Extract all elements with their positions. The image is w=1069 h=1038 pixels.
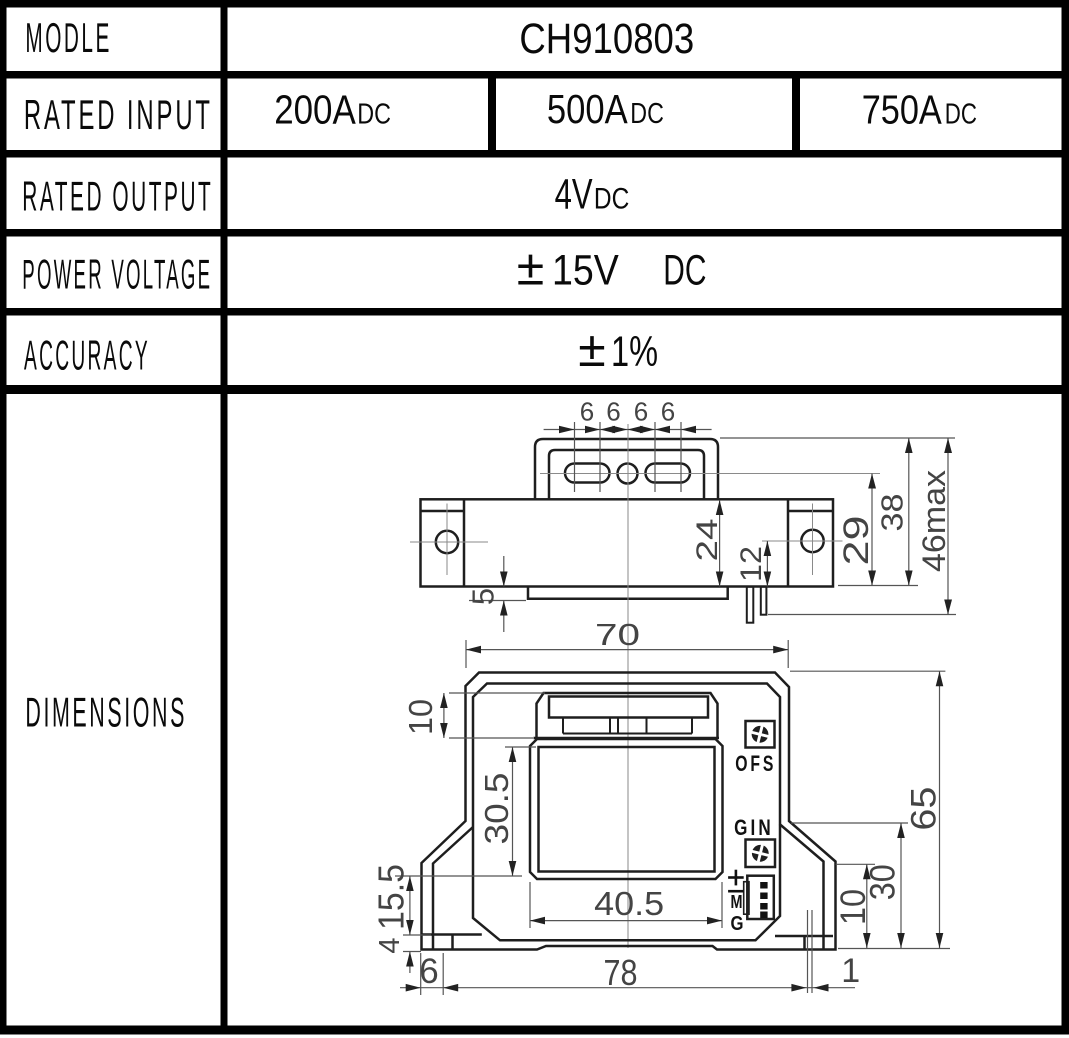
svg-text:12: 12 xyxy=(735,546,768,582)
svg-text:4: 4 xyxy=(374,937,406,953)
svg-text:750A: 750A xyxy=(862,86,943,132)
svg-text:30.5: 30.5 xyxy=(478,773,515,845)
svg-text:40.5: 40.5 xyxy=(594,885,664,922)
svg-text:4V: 4V xyxy=(555,170,593,218)
svg-text:1%: 1% xyxy=(611,328,658,376)
svg-text:500A: 500A xyxy=(547,86,628,132)
svg-text:OFS: OFS xyxy=(735,751,776,776)
svg-text:29: 29 xyxy=(837,516,876,566)
svg-text:±: ± xyxy=(517,240,544,296)
svg-text:RATED OUTPUT: RATED OUTPUT xyxy=(22,172,213,219)
svg-text:M: M xyxy=(731,892,743,912)
svg-text:1: 1 xyxy=(841,952,860,990)
svg-text:POWER VOLTAGE: POWER VOLTAGE xyxy=(22,250,212,297)
svg-text:15.5: 15.5 xyxy=(371,864,412,930)
svg-text:DC: DC xyxy=(357,98,391,130)
svg-text:±: ± xyxy=(578,321,605,377)
svg-text:15V: 15V xyxy=(552,247,619,295)
svg-text:CH910803: CH910803 xyxy=(519,16,694,63)
svg-text:DC: DC xyxy=(945,98,977,130)
svg-text:DIMENSIONS: DIMENSIONS xyxy=(25,689,187,736)
svg-text:6: 6 xyxy=(606,397,620,427)
svg-text:5: 5 xyxy=(466,588,501,605)
svg-text:6: 6 xyxy=(580,397,594,427)
svg-text:ACCURACY: ACCURACY xyxy=(24,331,150,378)
svg-text:6: 6 xyxy=(634,397,648,427)
svg-text:65: 65 xyxy=(905,787,944,831)
svg-text:DC: DC xyxy=(630,98,664,130)
svg-text:DC: DC xyxy=(594,182,629,215)
svg-text:38: 38 xyxy=(875,494,910,532)
svg-text:6: 6 xyxy=(419,952,438,991)
svg-text:70: 70 xyxy=(595,617,640,652)
svg-text:MODLE: MODLE xyxy=(25,14,112,61)
svg-text:DC: DC xyxy=(663,247,706,295)
svg-text:RATED INPUT: RATED INPUT xyxy=(24,91,213,138)
svg-text:78: 78 xyxy=(604,952,638,993)
svg-text:46max: 46max xyxy=(916,470,952,572)
svg-text:GIN: GIN xyxy=(734,815,774,840)
svg-text:30: 30 xyxy=(864,864,903,900)
svg-text:200A: 200A xyxy=(274,86,356,132)
svg-text:6: 6 xyxy=(661,397,675,427)
svg-text:10: 10 xyxy=(402,699,439,735)
svg-text:G: G xyxy=(731,913,744,935)
svg-text:24: 24 xyxy=(691,519,724,562)
